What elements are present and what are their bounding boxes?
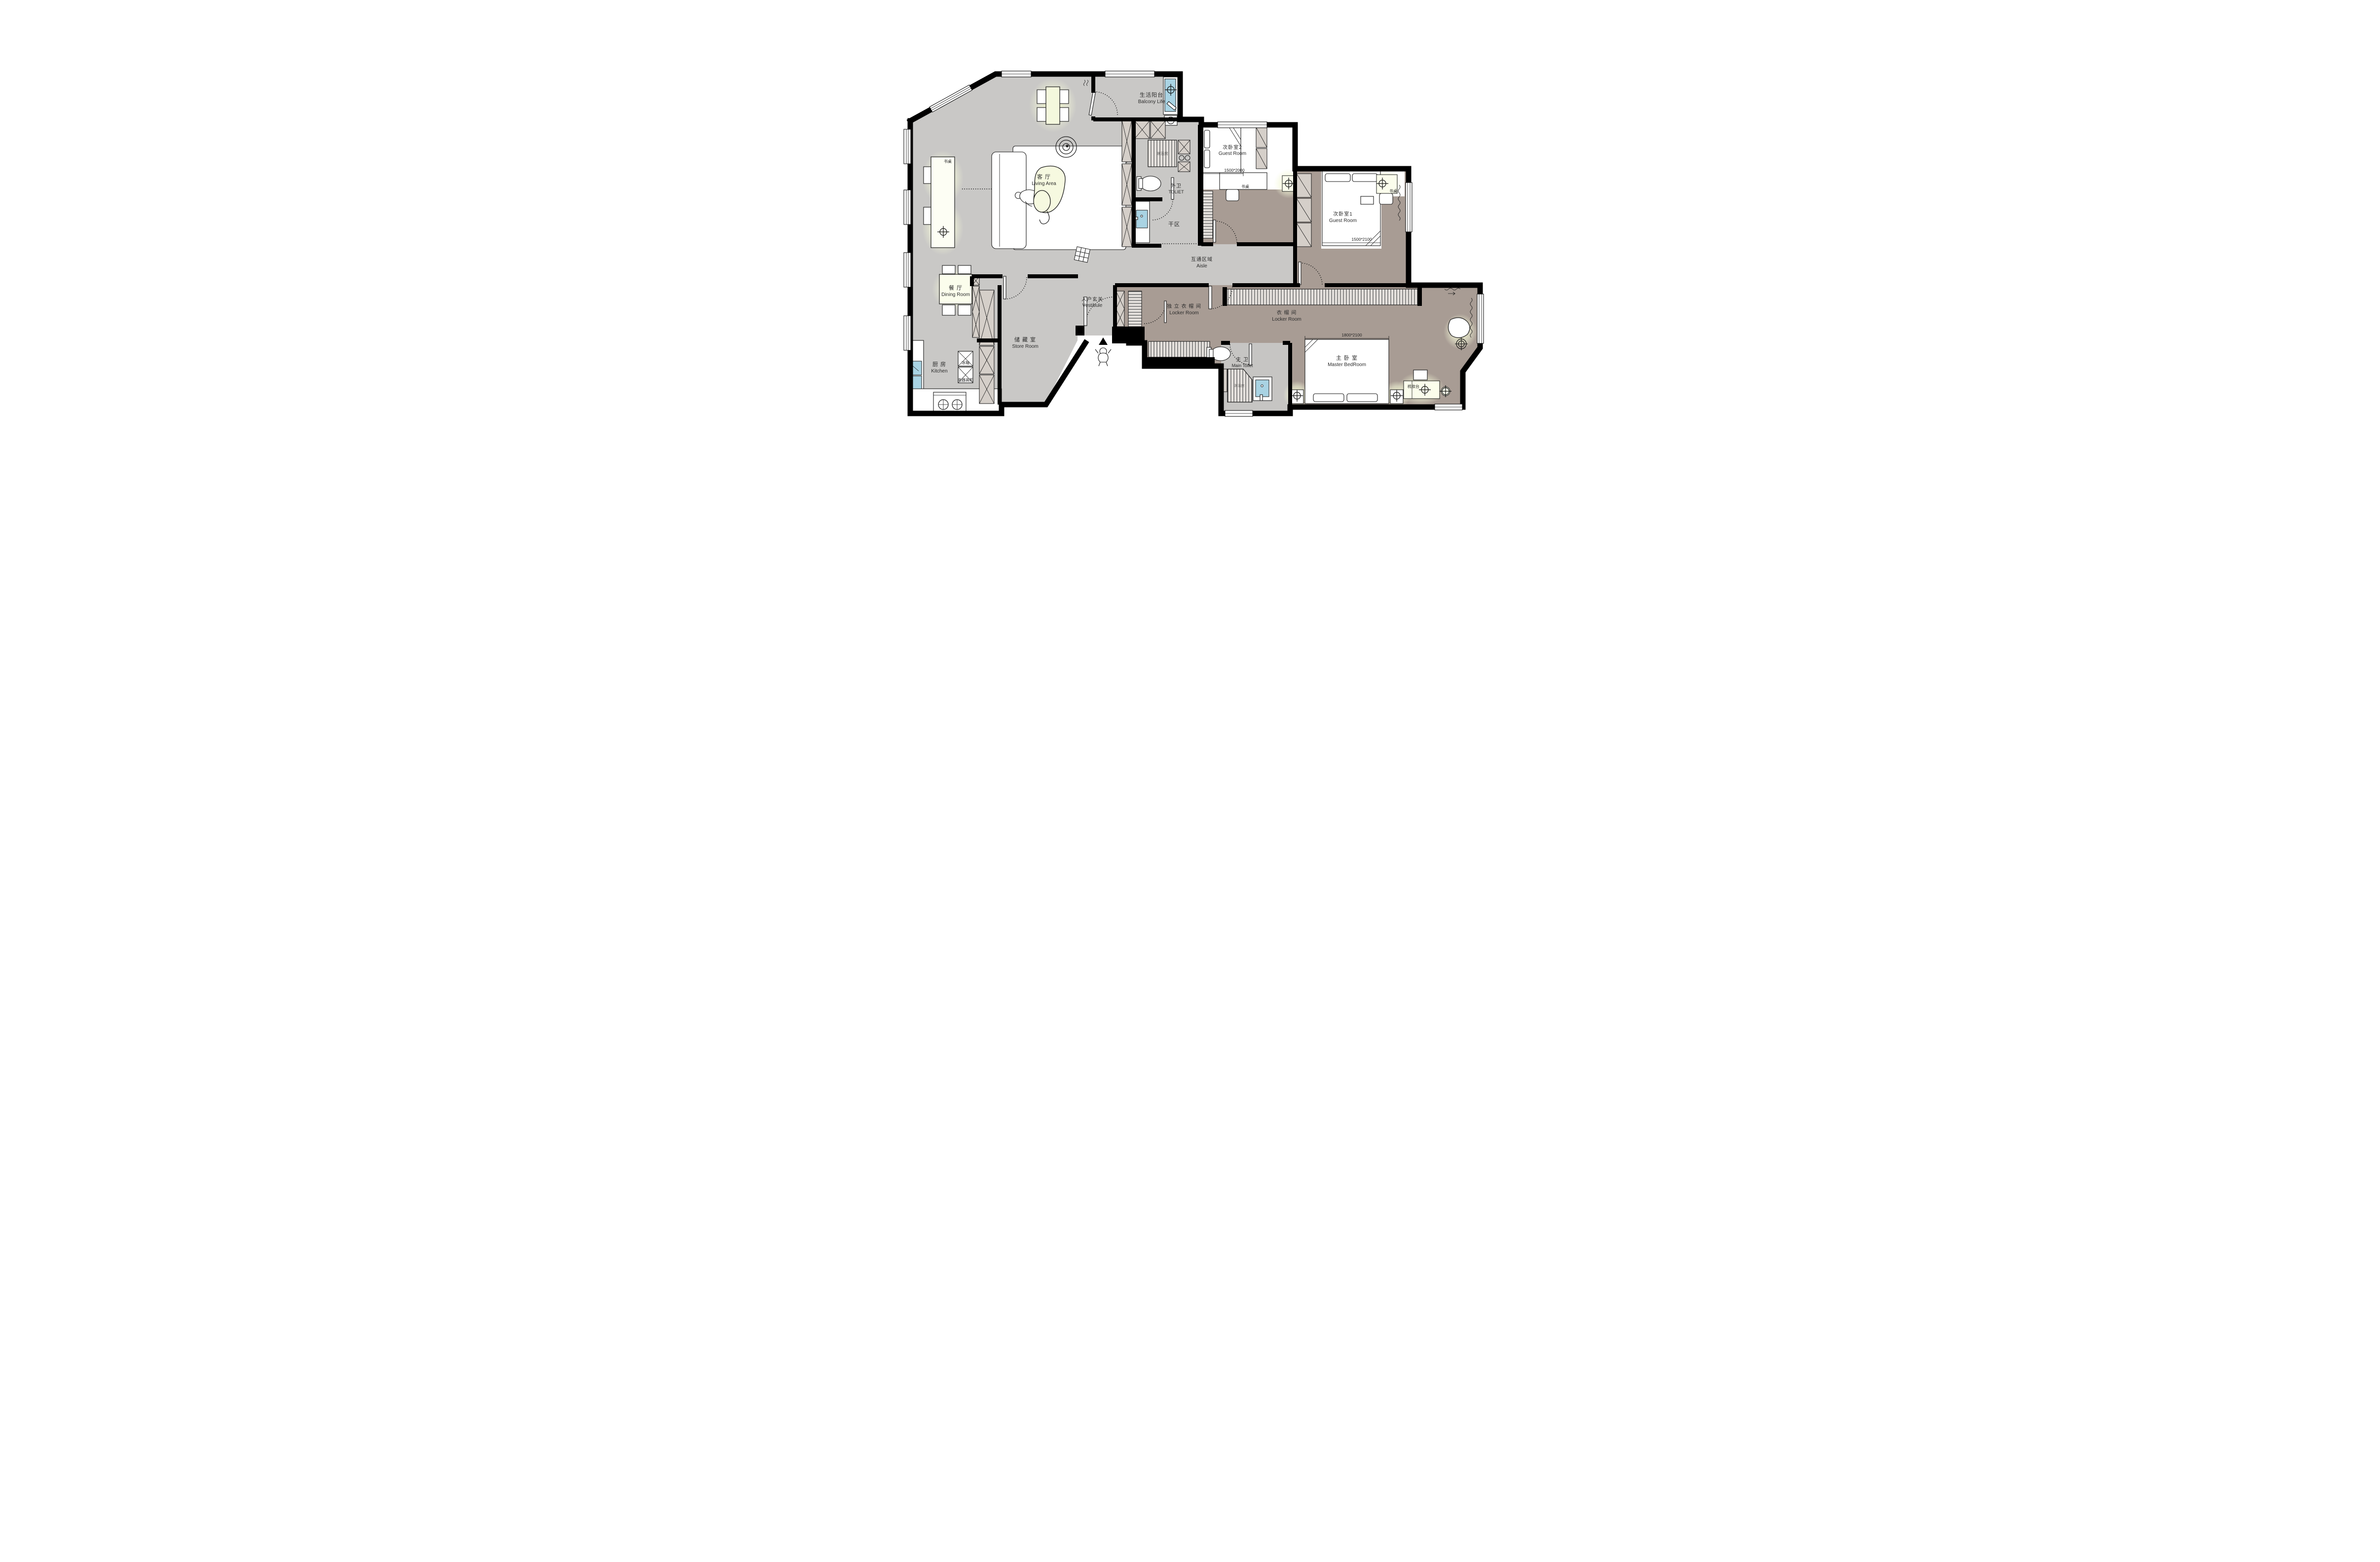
tea-table <box>1046 87 1060 124</box>
shower-room-top: 淋浴房 <box>1148 140 1177 167</box>
master-bed-size: 1800*2100 <box>1341 333 1362 337</box>
label-dry-area: 干区 <box>1168 222 1180 227</box>
label-outer-toilet-zh: 外卫 <box>1171 183 1182 189</box>
label-main-toilet-zh: 主 卫 <box>1236 357 1249 363</box>
closet-locker-run <box>1226 289 1419 305</box>
closet-endcap <box>1417 287 1422 306</box>
label-store-en: Store Room <box>1012 344 1038 349</box>
store-floor <box>1002 276 1078 405</box>
fridge-icon: 冰箱 <box>958 351 973 366</box>
floor-plan-drawing: 书桌 冰箱 <box>809 0 1571 500</box>
closet-endcap <box>1223 287 1227 306</box>
label-aisle-zh: 互通区域 <box>1191 256 1213 262</box>
label-dining-en: Dining Room <box>941 292 970 298</box>
window-guest1 <box>1406 183 1412 232</box>
person-entry-icon <box>1095 348 1111 366</box>
nightstand-guest1 <box>1361 196 1374 204</box>
aisle-floor <box>1132 242 1295 285</box>
floor-plan-page: 书桌 冰箱 <box>809 0 1571 500</box>
label-locker-en: Locker Room <box>1272 317 1301 322</box>
door-leaf-main-toilet <box>1249 344 1252 365</box>
wall-block-locker <box>1145 357 1215 366</box>
dresser-label: 梳妆台 <box>1408 384 1419 389</box>
label-locker-ind-en: Locker Room <box>1169 310 1198 316</box>
fridge-label: 冰箱 <box>962 360 969 365</box>
door-leaf-locker <box>1164 301 1166 323</box>
closet-striped-vestibule <box>1128 291 1142 327</box>
label-living-en: Living Area <box>1032 181 1056 186</box>
window-top <box>1002 71 1031 77</box>
guest2-wardrobe-striped <box>1202 191 1213 238</box>
desk-top <box>931 157 955 248</box>
label-balcony-en: Balcony Life <box>1138 99 1165 105</box>
toilet-icon-outer <box>1137 176 1161 191</box>
desk-label: 书桌 <box>1241 184 1249 189</box>
label-balcony-zh: 生活阳台 <box>1140 91 1163 98</box>
label-main-toilet-en: Main Toilet <box>1232 363 1253 368</box>
shower-label: 淋浴房 <box>1234 383 1245 388</box>
guest2-bed-size: 1500*2000 <box>1224 168 1244 173</box>
label-outer-toilet-en: TOLIET <box>1168 189 1184 194</box>
label-vestibule-zh: 入户玄关 <box>1081 296 1103 302</box>
window-left-3 <box>904 253 911 287</box>
label-kitchen-en: Kitchen <box>931 369 947 374</box>
label-locker-ind-zh: 独 立 衣 帽 间 <box>1167 303 1201 309</box>
label-master-en: Master BedRoom <box>1328 362 1366 368</box>
window-guest2 <box>1218 122 1267 128</box>
main-toilet-vanity <box>1253 377 1272 401</box>
window-left-1 <box>904 129 911 164</box>
sofa <box>992 152 1026 249</box>
label-store-zh: 储 藏 室 <box>1014 336 1036 343</box>
wardrobe-guest1 <box>1297 174 1311 247</box>
label-aisle-en: Aisle <box>1196 263 1207 269</box>
wall-block-entry <box>1112 327 1145 343</box>
vestibule-cabinets <box>1116 291 1142 327</box>
kitchen-tall-cabinet <box>979 290 994 404</box>
door-leaf-aisle <box>1209 286 1212 309</box>
window-left-4 <box>904 316 911 350</box>
bed-guest1 <box>1322 171 1380 246</box>
label-guest1-en: Guest Room <box>1329 218 1357 223</box>
floor-tile-deco <box>1074 247 1090 262</box>
master-bed <box>1305 339 1389 404</box>
label-kitchen-zh: 厨 房 <box>932 361 946 368</box>
entry-arrow-icon <box>1099 337 1108 345</box>
window-main-toilet <box>1225 410 1253 416</box>
door-leaf-guest1 <box>1299 262 1301 285</box>
label-dining-zh: 餐 厅 <box>949 284 963 291</box>
desk-label: 书桌 <box>1389 188 1397 193</box>
desk-label: 书桌 <box>944 159 952 164</box>
wardrobe-guest2 <box>1256 127 1267 169</box>
entry-threshold <box>1084 328 1114 335</box>
door-leaf-guest2 <box>1213 220 1216 242</box>
shower-label: 淋浴房 <box>1156 151 1168 156</box>
guest1-bed-size: 1500*2100 <box>1351 237 1372 242</box>
tv-cabinet <box>1122 120 1132 247</box>
window-master-right <box>1477 294 1484 343</box>
label-locker-zh: 衣 帽 间 <box>1277 309 1297 316</box>
stove-icon <box>933 392 966 413</box>
label-living-zh: 客 厅 <box>1037 173 1051 180</box>
appliance-cabinet-icon: 电器高柜 <box>958 367 973 383</box>
label-guest1-zh: 次卧室1 <box>1333 211 1353 217</box>
label-vestibule-en: Vestibule <box>1082 303 1103 308</box>
wall-block-entry2 <box>1076 326 1084 335</box>
closet-locker-independent <box>1149 341 1210 357</box>
window-master-bottom <box>1435 404 1462 410</box>
label-guest2-zh: 次卧室2 <box>1223 144 1242 150</box>
window-balcony-top <box>1105 71 1154 77</box>
window-left-2 <box>904 190 911 224</box>
side-table-round <box>1034 190 1050 212</box>
label-master-zh: 主 卧 室 <box>1336 354 1358 361</box>
store-door-leaf <box>1004 276 1006 299</box>
appliance-cabinet-label: 电器高柜 <box>958 377 973 382</box>
label-guest2-en: Guest Room <box>1219 151 1246 156</box>
